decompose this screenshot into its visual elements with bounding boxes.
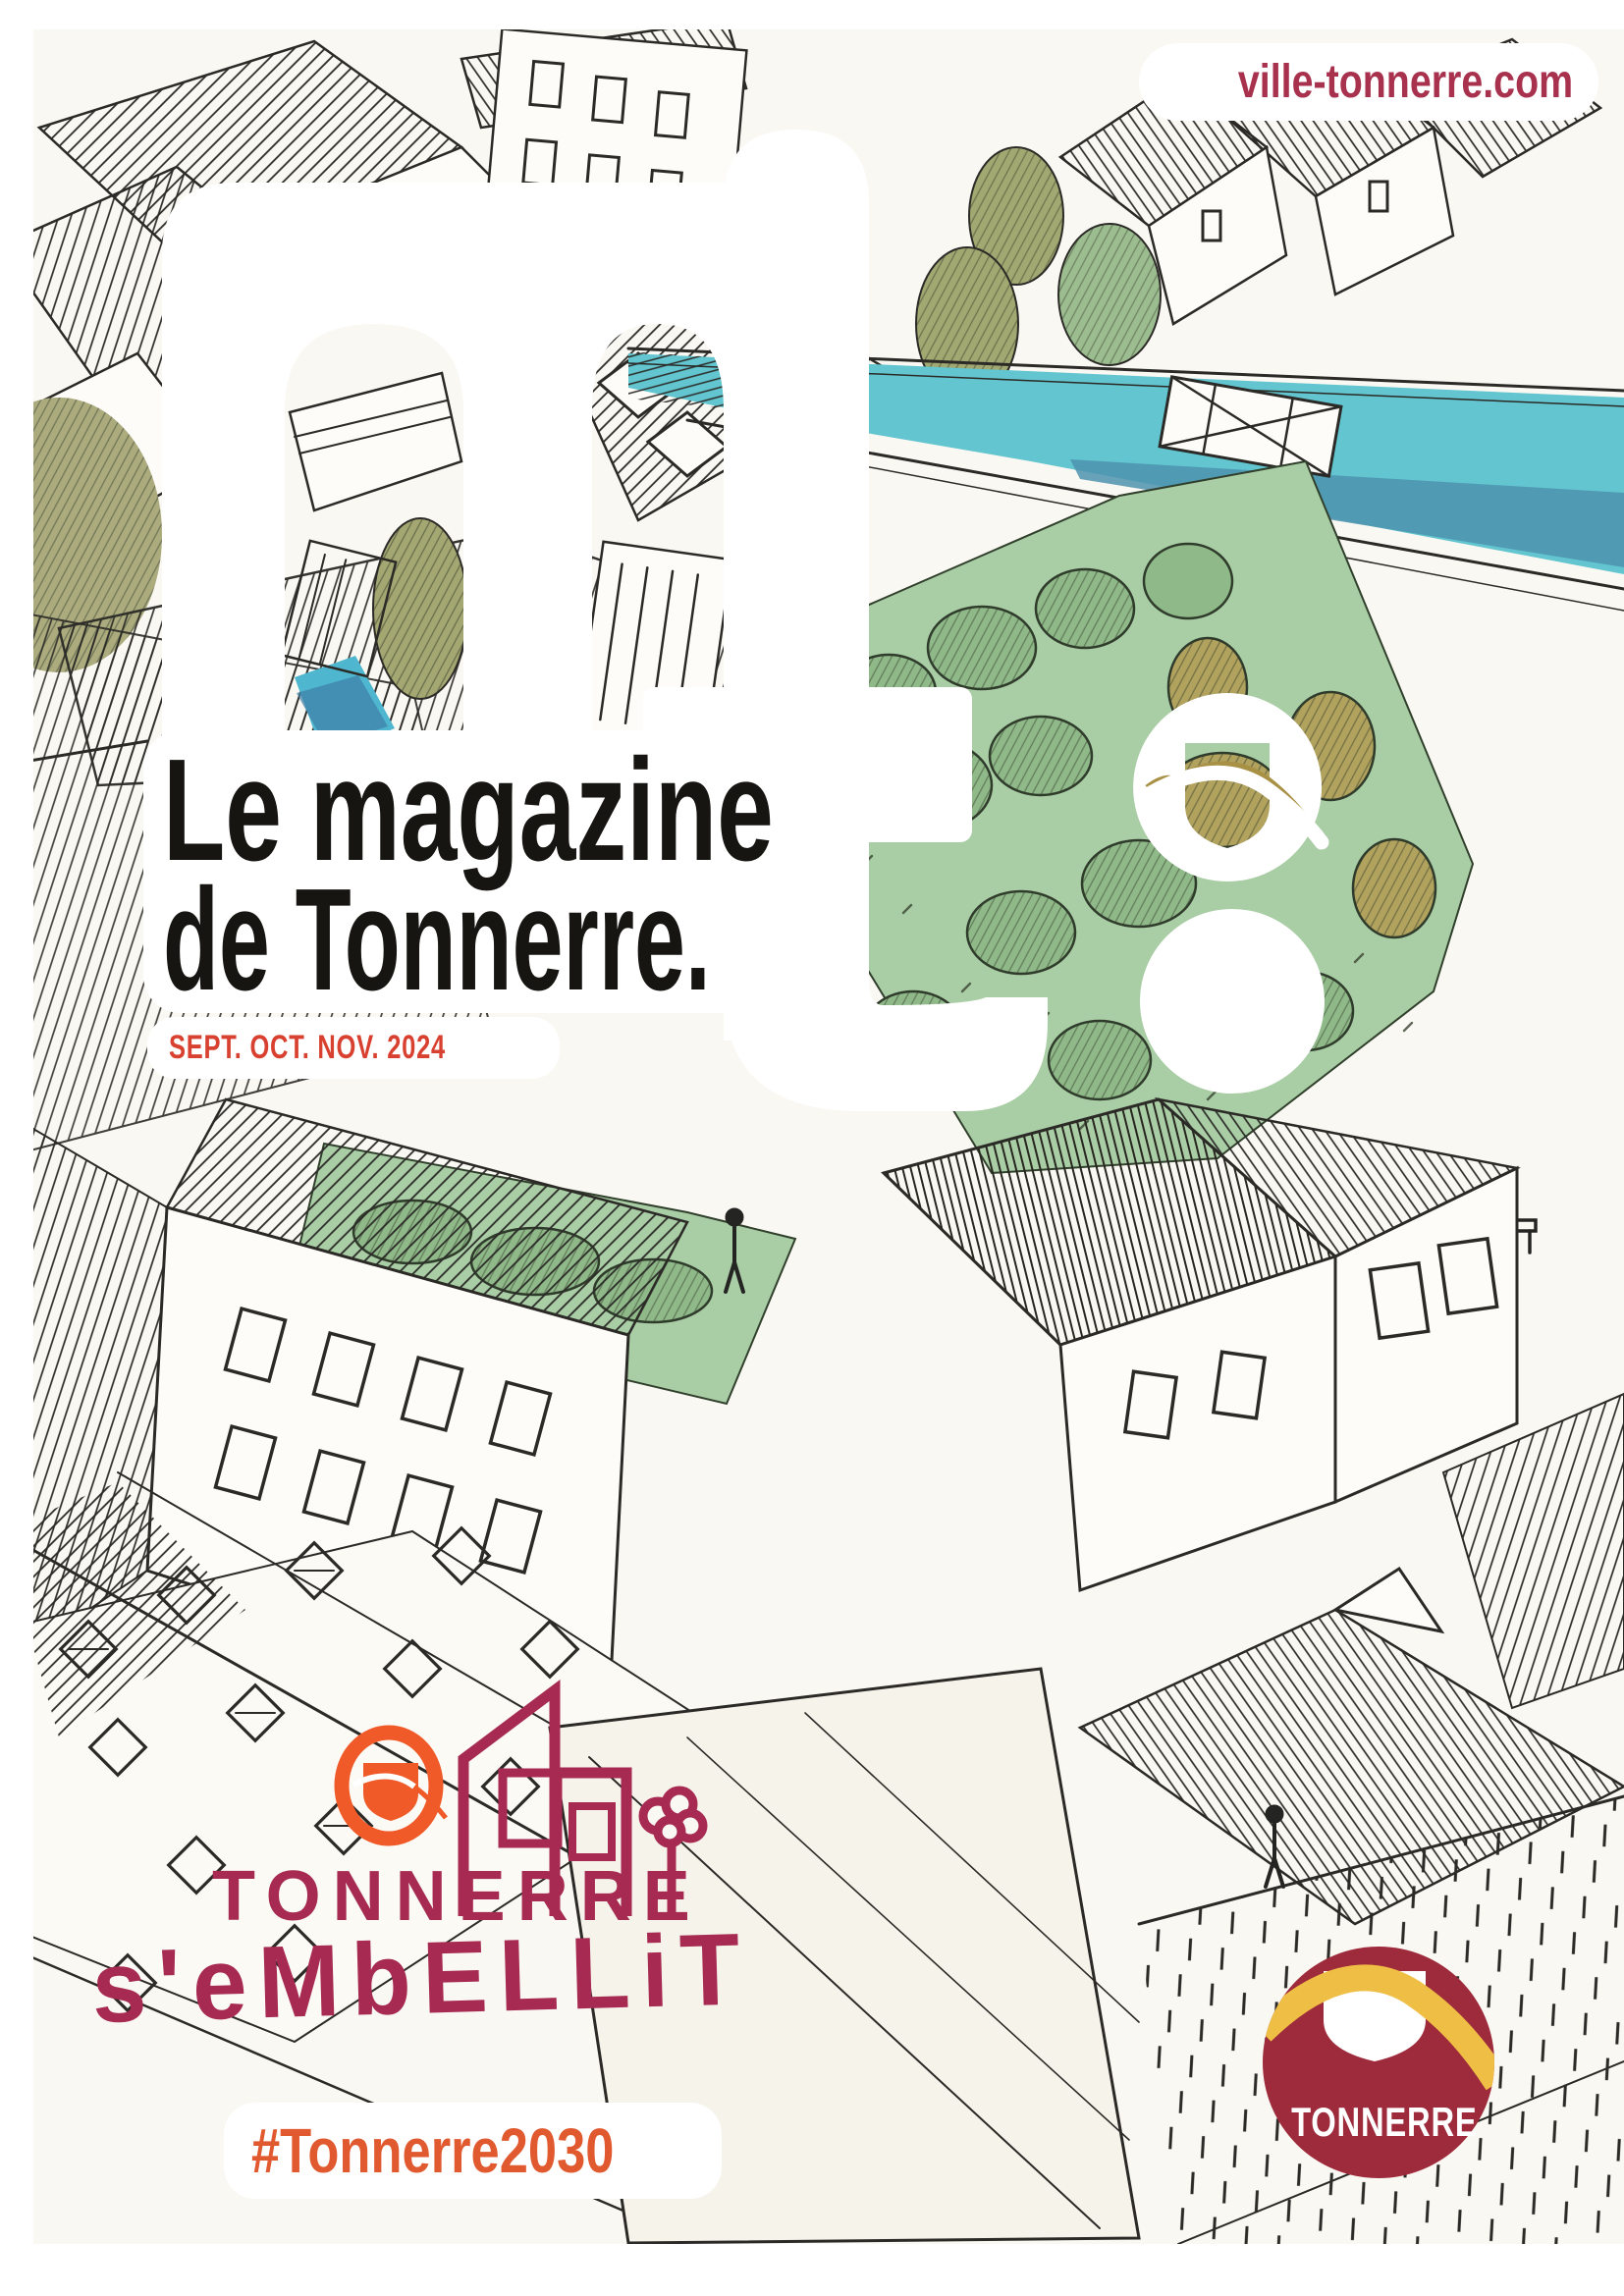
campaign-tagline: s'eMbELLiT bbox=[90, 1911, 753, 2047]
magazine-title-line2: de Tonnerre. bbox=[163, 868, 711, 1013]
issue-date: SEPT. OCT. NOV. 2024 bbox=[169, 1029, 446, 1067]
masthead-dot bbox=[1140, 909, 1325, 1094]
badge-city-label: TONNERRE bbox=[1291, 2099, 1466, 2146]
campaign-hashtag-pill: #Tonnerre2030 bbox=[224, 2103, 722, 2199]
issue-date-pill: SEPT. OCT. NOV. 2024 bbox=[147, 1017, 560, 1079]
website-url[interactable]: ville-tonnerre.com bbox=[1238, 55, 1573, 109]
magazine-cover: ville-tonnerre.com Le magazine de Tonner… bbox=[0, 0, 1624, 2296]
campaign-hashtag: #Tonnerre2030 bbox=[251, 2114, 614, 2187]
website-url-pill[interactable]: ville-tonnerre.com bbox=[1139, 43, 1598, 121]
